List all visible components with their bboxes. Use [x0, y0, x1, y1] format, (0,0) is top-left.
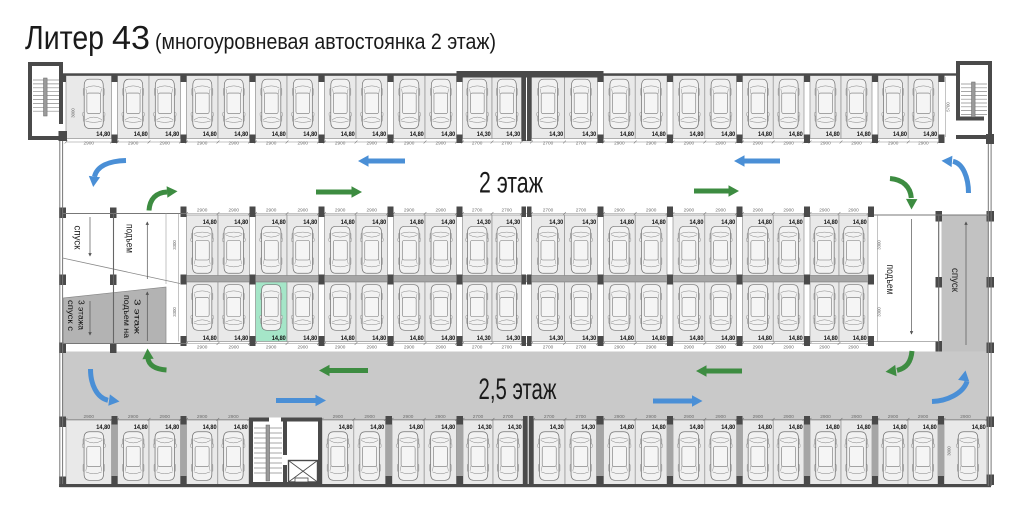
svg-text:43: 43 [112, 19, 150, 56]
svg-text:14,80: 14,80 [234, 424, 248, 431]
svg-text:2900: 2900 [819, 208, 830, 213]
svg-text:14,80: 14,80 [341, 219, 355, 226]
svg-text:14,30: 14,30 [549, 335, 563, 342]
svg-text:14,80: 14,80 [96, 131, 110, 138]
svg-text:14,80: 14,80 [441, 335, 455, 342]
svg-text:2900: 2900 [84, 414, 95, 419]
svg-text:14,80: 14,80 [893, 424, 907, 431]
svg-text:2900: 2900 [403, 414, 414, 419]
svg-text:спуск с: спуск с [66, 300, 75, 331]
svg-text:2900: 2900 [918, 414, 929, 419]
svg-text:2700: 2700 [576, 414, 587, 419]
svg-text:14,80: 14,80 [341, 131, 355, 138]
svg-text:2700: 2700 [543, 141, 554, 146]
svg-text:2900: 2900 [364, 414, 375, 419]
svg-text:14,80: 14,80 [789, 131, 803, 138]
svg-text:14,80: 14,80 [789, 335, 803, 342]
svg-text:14,80: 14,80 [857, 424, 871, 431]
svg-text:2900: 2900 [614, 141, 625, 146]
svg-text:3 этаж: 3 этаж [133, 299, 142, 335]
svg-text:2900: 2900 [646, 414, 657, 419]
svg-text:2700: 2700 [473, 414, 484, 419]
svg-text:14,80: 14,80 [826, 424, 840, 431]
svg-text:спуск: спуск [72, 226, 84, 250]
svg-text:2700: 2700 [543, 345, 554, 350]
svg-text:3300: 3300 [172, 307, 177, 317]
svg-text:3300: 3300 [877, 307, 882, 317]
svg-text:3300: 3300 [877, 240, 882, 250]
svg-text:2900: 2900 [436, 208, 447, 213]
svg-text:14,80: 14,80 [165, 131, 179, 138]
svg-text:2900: 2900 [229, 208, 240, 213]
svg-text:14,80: 14,80 [923, 131, 937, 138]
svg-text:14,80: 14,80 [824, 219, 838, 226]
svg-text:2900: 2900 [646, 345, 657, 350]
svg-text:14,80: 14,80 [690, 219, 704, 226]
svg-text:14,80: 14,80 [620, 219, 634, 226]
svg-text:14,80: 14,80 [234, 219, 248, 226]
svg-text:2900: 2900 [783, 414, 794, 419]
svg-text:14,30: 14,30 [582, 335, 596, 342]
svg-text:14,80: 14,80 [441, 131, 455, 138]
svg-text:14,80: 14,80 [203, 424, 217, 431]
svg-text:2900: 2900 [888, 141, 899, 146]
svg-text:2,5 этаж: 2,5 этаж [479, 373, 557, 406]
svg-text:2900: 2900 [614, 345, 625, 350]
svg-text:2900: 2900 [614, 208, 625, 213]
svg-text:2900: 2900 [435, 414, 446, 419]
svg-text:2900: 2900 [229, 141, 240, 146]
svg-text:2700: 2700 [503, 414, 514, 419]
svg-text:14,80: 14,80 [441, 219, 455, 226]
svg-text:14,80: 14,80 [410, 335, 424, 342]
svg-text:2700: 2700 [472, 208, 483, 213]
svg-text:2700: 2700 [472, 345, 483, 350]
svg-text:14,80: 14,80 [690, 335, 704, 342]
svg-text:2900: 2900 [128, 414, 139, 419]
svg-text:3300: 3300 [172, 240, 177, 250]
svg-text:2900: 2900 [197, 141, 208, 146]
svg-text:14,80: 14,80 [272, 219, 286, 226]
svg-text:14,80: 14,80 [372, 335, 386, 342]
svg-text:2900: 2900 [128, 141, 139, 146]
svg-text:14,30: 14,30 [506, 219, 520, 226]
svg-text:подъем: подъем [884, 265, 896, 295]
svg-text:14,80: 14,80 [721, 424, 735, 431]
svg-text:2900: 2900 [783, 141, 794, 146]
svg-text:2900: 2900 [84, 141, 95, 146]
svg-text:14,80: 14,80 [620, 424, 634, 431]
svg-text:2900: 2900 [783, 208, 794, 213]
svg-text:14,80: 14,80 [134, 424, 148, 431]
svg-text:14,30: 14,30 [508, 424, 522, 431]
svg-text:14,80: 14,80 [303, 335, 317, 342]
svg-text:14,80: 14,80 [652, 424, 666, 431]
svg-text:2900: 2900 [684, 345, 695, 350]
svg-text:2700: 2700 [576, 141, 587, 146]
svg-text:2900: 2900 [715, 414, 726, 419]
svg-text:14,80: 14,80 [234, 335, 248, 342]
svg-text:14,30: 14,30 [550, 424, 564, 431]
svg-text:14,80: 14,80 [409, 424, 423, 431]
svg-text:14,80: 14,80 [652, 335, 666, 342]
svg-text:2900: 2900 [783, 345, 794, 350]
svg-text:2900: 2900 [367, 208, 378, 213]
svg-text:2900: 2900 [160, 414, 171, 419]
svg-text:2 этаж: 2 этаж [479, 167, 543, 200]
svg-text:2900: 2900 [715, 208, 726, 213]
svg-text:14,80: 14,80 [341, 335, 355, 342]
svg-text:2900: 2900 [848, 345, 859, 350]
svg-text:2900: 2900 [960, 414, 971, 419]
svg-text:2900: 2900 [197, 208, 208, 213]
svg-text:2700: 2700 [543, 208, 554, 213]
svg-text:14,80: 14,80 [652, 219, 666, 226]
svg-text:14,80: 14,80 [234, 131, 248, 138]
svg-text:14,30: 14,30 [506, 335, 520, 342]
svg-text:14,80: 14,80 [441, 424, 455, 431]
svg-text:2900: 2900 [266, 345, 277, 350]
svg-text:14,30: 14,30 [477, 219, 491, 226]
svg-text:14,80: 14,80 [620, 131, 634, 138]
svg-text:2900: 2900 [753, 345, 764, 350]
svg-text:Литер: Литер [25, 19, 104, 56]
svg-text:2900: 2900 [404, 141, 415, 146]
svg-text:(многоуровневая автостоянка 2: (многоуровневая автостоянка 2 этаж) [155, 29, 496, 54]
svg-text:14,80: 14,80 [372, 219, 386, 226]
svg-text:2900: 2900 [229, 345, 240, 350]
svg-text:2900: 2900 [820, 414, 831, 419]
svg-text:2900: 2900 [888, 414, 899, 419]
svg-text:14,80: 14,80 [372, 131, 386, 138]
svg-text:14,80: 14,80 [758, 219, 772, 226]
svg-text:14,80: 14,80 [339, 424, 353, 431]
svg-text:подъем на: подъем на [122, 295, 131, 339]
svg-text:3 этажа: 3 этажа [77, 300, 86, 331]
svg-text:2900: 2900 [820, 141, 831, 146]
svg-text:14,80: 14,80 [652, 131, 666, 138]
svg-text:14,30: 14,30 [581, 424, 595, 431]
svg-text:2900: 2900 [715, 345, 726, 350]
svg-text:14,80: 14,80 [826, 131, 840, 138]
svg-text:14,80: 14,80 [410, 219, 424, 226]
svg-text:14,30: 14,30 [549, 219, 563, 226]
svg-text:14,30: 14,30 [478, 424, 492, 431]
svg-text:14,80: 14,80 [203, 219, 217, 226]
svg-text:2900: 2900 [335, 208, 346, 213]
svg-text:2900: 2900 [197, 345, 208, 350]
svg-text:14,80: 14,80 [272, 131, 286, 138]
svg-text:2900: 2900 [436, 345, 447, 350]
svg-text:5700: 5700 [946, 102, 951, 112]
svg-text:14,80: 14,80 [789, 219, 803, 226]
svg-text:2700: 2700 [472, 141, 483, 146]
svg-text:14,80: 14,80 [690, 131, 704, 138]
svg-text:2700: 2700 [502, 345, 513, 350]
svg-text:14,80: 14,80 [721, 335, 735, 342]
svg-text:14,30: 14,30 [506, 131, 520, 138]
svg-text:14,80: 14,80 [893, 131, 907, 138]
svg-text:2900: 2900 [160, 141, 171, 146]
svg-text:14,80: 14,80 [853, 335, 867, 342]
svg-text:2900: 2900 [404, 345, 415, 350]
svg-text:2700: 2700 [502, 141, 513, 146]
svg-text:подъем: подъем [124, 224, 136, 253]
svg-text:2900: 2900 [404, 208, 415, 213]
svg-text:14,30: 14,30 [582, 219, 596, 226]
svg-text:2900: 2900 [228, 414, 239, 419]
svg-text:2900: 2900 [753, 141, 764, 146]
svg-text:14,80: 14,80 [272, 335, 286, 342]
svg-text:2700: 2700 [544, 414, 555, 419]
svg-text:2900: 2900 [298, 141, 309, 146]
svg-text:14,80: 14,80 [690, 424, 704, 431]
svg-text:2900: 2900 [197, 414, 208, 419]
svg-text:2900: 2900 [367, 141, 378, 146]
svg-text:14,80: 14,80 [203, 131, 217, 138]
svg-text:14,80: 14,80 [134, 131, 148, 138]
svg-text:2900: 2900 [848, 208, 859, 213]
svg-text:2900: 2900 [298, 208, 309, 213]
svg-text:2900: 2900 [851, 141, 862, 146]
svg-text:14,80: 14,80 [789, 424, 803, 431]
svg-text:14,80: 14,80 [303, 131, 317, 138]
svg-text:14,80: 14,80 [972, 424, 986, 431]
svg-text:14,80: 14,80 [758, 424, 772, 431]
svg-text:14,30: 14,30 [582, 131, 596, 138]
svg-text:14,80: 14,80 [721, 131, 735, 138]
svg-text:14,80: 14,80 [857, 131, 871, 138]
svg-text:14,80: 14,80 [303, 219, 317, 226]
svg-text:14,30: 14,30 [549, 131, 563, 138]
svg-text:14,80: 14,80 [410, 131, 424, 138]
svg-text:2900: 2900 [335, 141, 346, 146]
svg-text:2900: 2900 [684, 414, 695, 419]
svg-text:14,80: 14,80 [96, 424, 110, 431]
svg-text:14,80: 14,80 [165, 424, 179, 431]
svg-text:2700: 2700 [576, 208, 587, 213]
svg-text:2900: 2900 [753, 414, 764, 419]
svg-text:2700: 2700 [576, 345, 587, 350]
svg-text:2900: 2900 [646, 208, 657, 213]
svg-text:2900: 2900 [715, 141, 726, 146]
svg-text:14,30: 14,30 [477, 131, 491, 138]
svg-text:14,80: 14,80 [370, 424, 384, 431]
svg-text:14,80: 14,80 [853, 219, 867, 226]
svg-text:2900: 2900 [436, 141, 447, 146]
svg-text:14,80: 14,80 [721, 219, 735, 226]
svg-text:2900: 2900 [367, 345, 378, 350]
svg-text:14,80: 14,80 [824, 335, 838, 342]
svg-text:2900: 2900 [646, 141, 657, 146]
svg-text:2900: 2900 [266, 208, 277, 213]
svg-text:14,80: 14,80 [620, 335, 634, 342]
svg-text:14,80: 14,80 [758, 335, 772, 342]
svg-text:2700: 2700 [502, 208, 513, 213]
svg-text:2900: 2900 [918, 141, 929, 146]
svg-text:14,80: 14,80 [923, 424, 937, 431]
svg-text:3000: 3000 [947, 446, 952, 456]
svg-text:спуск: спуск [949, 268, 961, 292]
svg-text:14,80: 14,80 [758, 131, 772, 138]
svg-text:2900: 2900 [684, 208, 695, 213]
svg-text:2900: 2900 [266, 141, 277, 146]
svg-text:2900: 2900 [333, 414, 344, 419]
svg-text:2900: 2900 [684, 141, 695, 146]
svg-text:14,30: 14,30 [477, 335, 491, 342]
svg-text:2900: 2900 [614, 414, 625, 419]
svg-text:3000: 3000 [71, 108, 76, 118]
svg-text:2900: 2900 [851, 414, 862, 419]
svg-text:2900: 2900 [819, 345, 830, 350]
svg-text:2900: 2900 [335, 345, 346, 350]
svg-text:2900: 2900 [298, 345, 309, 350]
svg-text:2900: 2900 [753, 208, 764, 213]
svg-text:14,80: 14,80 [203, 335, 217, 342]
